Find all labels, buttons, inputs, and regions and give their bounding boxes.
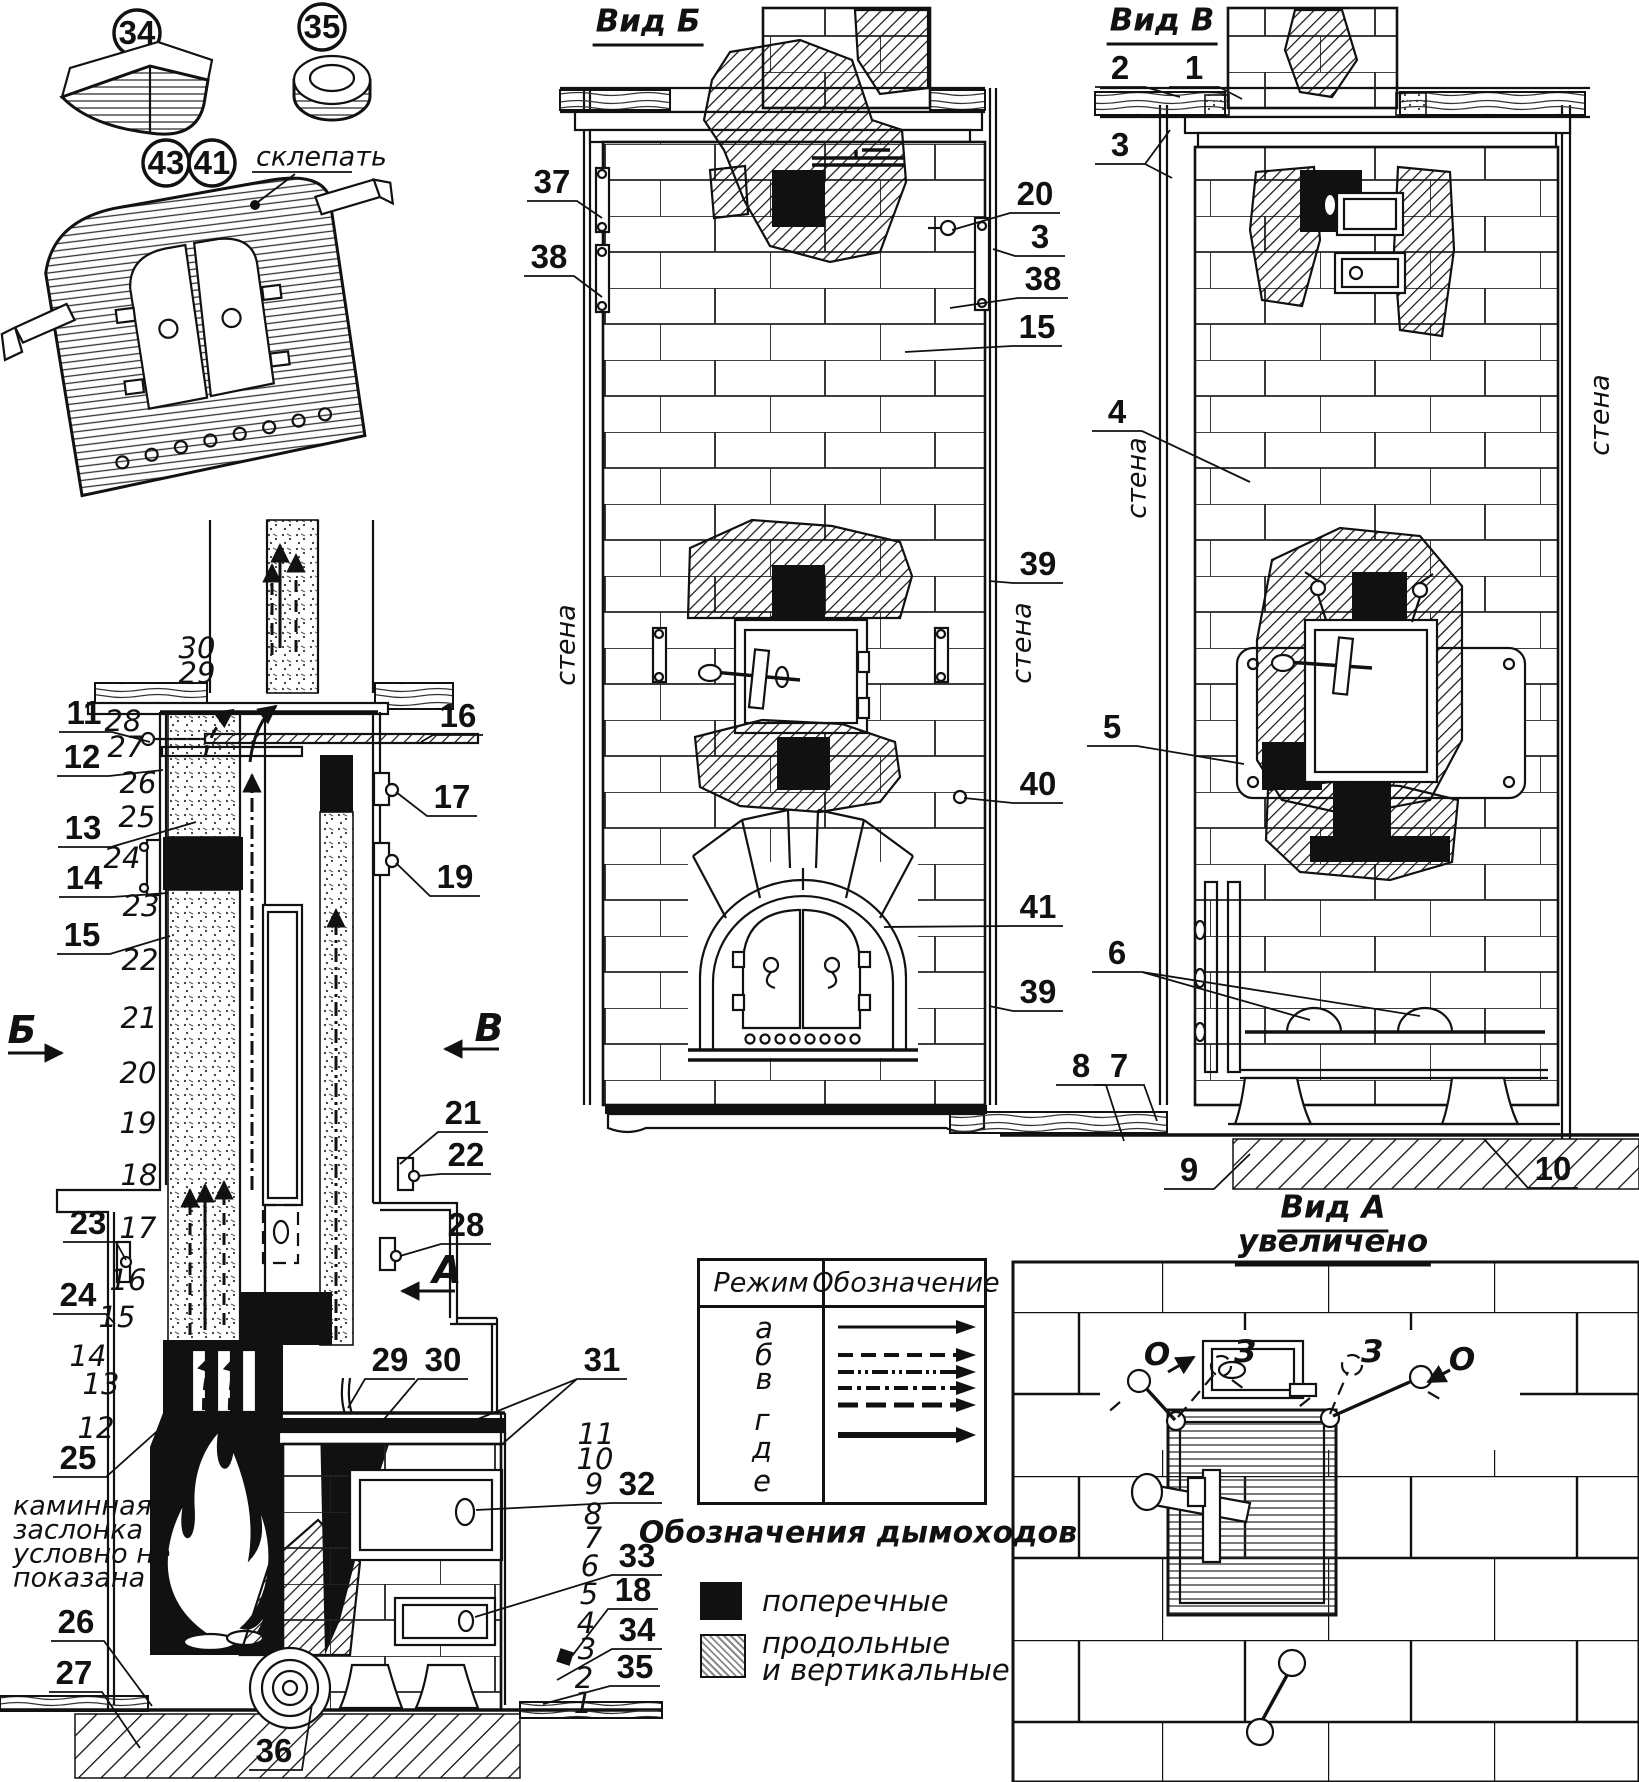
closed-position-label: З — [1361, 1334, 1383, 1370]
callout-23: 23 — [70, 1204, 107, 1242]
part-number-41: 41 — [194, 144, 231, 182]
callout-27: 27 — [56, 1654, 93, 1692]
table-header-divider — [700, 1305, 984, 1308]
mode-legend-table: Режим Обозначение а б в г д е — [697, 1258, 987, 1505]
direction-b: Б — [8, 1008, 37, 1052]
callout-19: 19 — [437, 858, 474, 896]
note-line: показана — [13, 1563, 145, 1594]
longitudinal-flue-swatch — [700, 1634, 746, 1678]
callout-8: 8 — [1072, 1047, 1090, 1085]
row-number: 19 — [120, 1106, 157, 1140]
row-number: 9 — [585, 1467, 603, 1501]
row-number: 18 — [121, 1158, 158, 1192]
wall-label: стена — [1585, 374, 1616, 455]
part-number-34: 34 — [119, 14, 156, 52]
longitudinal-flue-label: и вертикальные — [762, 1653, 1010, 1687]
wall-label: стена — [1122, 437, 1153, 518]
view-a-drawing — [1013, 1262, 1639, 1782]
callout-30: 30 — [425, 1341, 462, 1379]
callout-26: 26 — [58, 1603, 95, 1641]
row-number: 20 — [120, 1056, 157, 1090]
part-number-35: 35 — [304, 8, 341, 46]
callout-39: 39 — [1020, 545, 1057, 583]
mode-v: в — [755, 1362, 772, 1396]
row-number: 21 — [121, 1001, 158, 1035]
row-number: 16 — [110, 1263, 147, 1297]
view-a-subtitle: увеличено — [1235, 1224, 1431, 1267]
callout-24: 24 — [60, 1276, 97, 1314]
callout-39: 39 — [1020, 973, 1057, 1011]
callout-7: 7 — [1110, 1047, 1128, 1085]
callout-18: 18 — [615, 1571, 652, 1609]
open-position-label: О — [1144, 1337, 1170, 1373]
callout-22: 22 — [448, 1136, 485, 1174]
callout-15: 15 — [1019, 308, 1056, 346]
callout-28: 28 — [448, 1206, 485, 1244]
direction-a: А — [432, 1248, 461, 1292]
callout-34: 34 — [619, 1611, 656, 1649]
table-header-symbol: Обозначение — [812, 1268, 999, 1299]
row-number: 15 — [99, 1300, 136, 1334]
view-b-title: Вид Б — [593, 4, 704, 47]
callout-9: 9 — [1180, 1151, 1198, 1189]
table-header-mode: Режим — [713, 1268, 808, 1299]
callout-11: 11 — [67, 694, 102, 732]
callout-14: 14 — [66, 859, 103, 897]
callout-17: 17 — [434, 778, 471, 816]
callout-36: 36 — [256, 1732, 293, 1770]
callout-13: 13 — [65, 809, 102, 847]
mode-e: е — [753, 1464, 771, 1498]
row-number: 29 — [179, 656, 216, 690]
callout-38: 38 — [531, 238, 568, 276]
wall-label: стена — [1007, 602, 1038, 683]
transverse-flue-swatch — [700, 1582, 742, 1620]
row-number: 24 — [104, 841, 141, 875]
row-number: 1 — [574, 1686, 592, 1720]
arrow-dash-dot-dot — [832, 1364, 982, 1380]
callout-6: 6 — [1108, 934, 1126, 972]
callout-3: 3 — [1111, 126, 1129, 164]
callout-20: 20 — [1017, 175, 1054, 213]
mode-d: д — [752, 1431, 772, 1465]
rivet-label: склепать — [256, 142, 387, 173]
direction-v: В — [475, 1006, 504, 1050]
flue-legend-title: Обозначения дымоходов — [639, 1516, 1077, 1551]
fire-door-assembly-drawing — [0, 140, 424, 503]
row-number: 22 — [122, 943, 159, 977]
callout-2: 2 — [1111, 49, 1129, 87]
arrow-thick-solid — [832, 1427, 982, 1443]
callout-10: 10 — [1535, 1150, 1572, 1188]
callout-1: 1 — [1185, 49, 1203, 87]
row-number: 23 — [123, 889, 160, 923]
open-position-label: О — [1449, 1342, 1475, 1378]
stove-construction-diagram: 34 35 43 41 склепать 30 29 28 27 26 25 2… — [0, 0, 1639, 1782]
callout-41: 41 — [1020, 888, 1057, 926]
view-b-drawing — [524, 8, 1068, 1132]
callout-25: 25 — [60, 1439, 97, 1477]
callout-40: 40 — [1020, 765, 1057, 803]
callout-35: 35 — [617, 1648, 654, 1686]
callout-37: 37 — [534, 163, 571, 201]
transverse-flue-label: поперечные — [762, 1584, 949, 1618]
arrow-solid — [832, 1319, 982, 1335]
callout-21: 21 — [445, 1094, 482, 1132]
callout-16: 16 — [440, 697, 477, 735]
callout-4: 4 — [1108, 393, 1126, 431]
row-number: 26 — [120, 766, 157, 800]
callout-3: 3 — [1031, 218, 1049, 256]
row-number: 25 — [119, 800, 156, 834]
row-number: 17 — [120, 1211, 157, 1245]
row-number: 27 — [108, 730, 145, 764]
callout-32: 32 — [619, 1465, 656, 1503]
part-number-43: 43 — [148, 144, 185, 182]
wall-label: стена — [551, 604, 582, 685]
callout-5: 5 — [1103, 708, 1121, 746]
callout-15: 15 — [64, 916, 101, 954]
row-number: 13 — [83, 1367, 120, 1401]
closed-position-label: З — [1234, 1334, 1256, 1370]
callout-38: 38 — [1025, 260, 1062, 298]
callout-31: 31 — [584, 1341, 621, 1379]
arrow-dash-dot — [832, 1380, 982, 1396]
callout-12: 12 — [64, 738, 101, 776]
callout-29: 29 — [372, 1341, 409, 1379]
arrow-long-dash — [832, 1397, 982, 1413]
view-v-title: Вид В — [1107, 3, 1218, 46]
arrow-dashed — [832, 1347, 982, 1363]
